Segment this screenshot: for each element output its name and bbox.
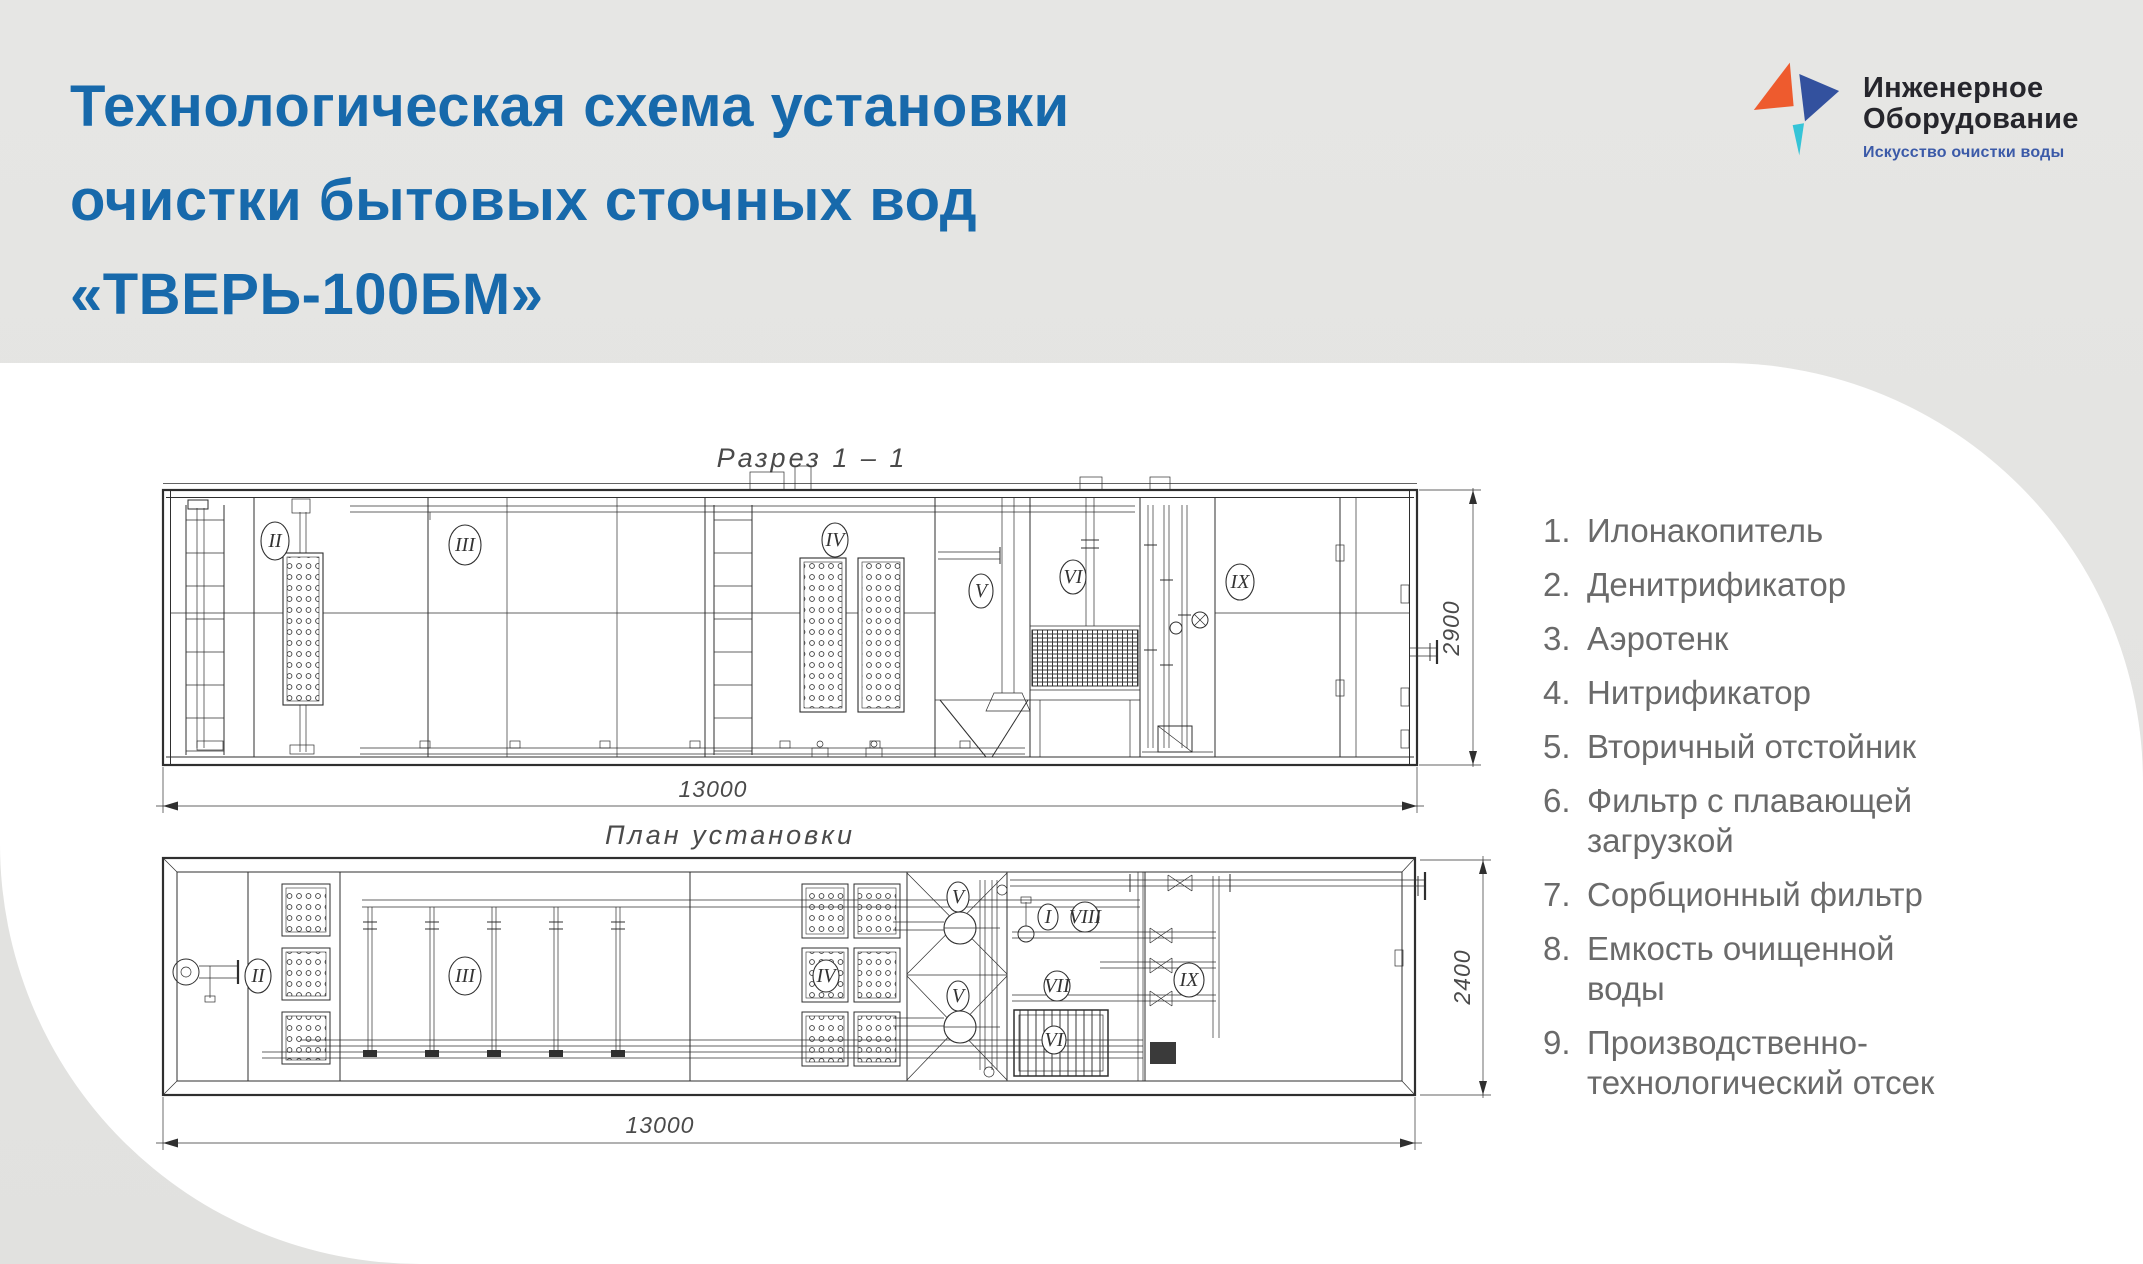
plan-drawing: План установки (156, 820, 1491, 1150)
plan-compartment-3: III (262, 900, 1143, 1058)
legend-item-text: Фильтр с плавающей загрузкой (1587, 781, 1967, 861)
list-item: 3. Аэротенк (1543, 619, 1973, 659)
plan-label-VIII: VIII (1069, 906, 1103, 928)
logo-name-line2: Оборудование (1863, 104, 2079, 135)
plan-caption: План установки (605, 820, 855, 850)
legend-item-number: 9. (1543, 1023, 1587, 1103)
logo-mark-icon (1748, 55, 1843, 163)
section-label-III: III (454, 534, 476, 556)
section-label-II: II (267, 530, 283, 552)
plan-label-IX: IX (1179, 969, 1200, 991)
section-label-IV: IV (825, 529, 848, 551)
list-item: 6. Фильтр с плавающей загрузкой (1543, 781, 1973, 861)
logo-text: Инженерное Оборудование Искусство очистк… (1863, 55, 2079, 162)
plan-label-IV: IV (816, 965, 839, 987)
section-compartment-5: V (935, 498, 1030, 757)
plan-label-I: I (1044, 906, 1053, 928)
section-ladder-left (186, 500, 224, 755)
plan-compartment-9: IX (1174, 950, 1403, 997)
logo-name-line1: Инженерное (1863, 73, 2079, 104)
section-label-IX: IX (1230, 571, 1251, 593)
legend-item-text: Илонакопитель (1587, 511, 1967, 551)
section-compartment-6: VI (1030, 498, 1140, 757)
legend-item-text: Производственно-технологический отсек (1587, 1023, 1967, 1103)
legend-item-number: 5. (1543, 727, 1587, 767)
title-line-3: «ТВЕРЬ-100БМ» (70, 248, 1070, 342)
legend-item-text: Нитрификатор (1587, 673, 1967, 713)
legend-item-number: 3. (1543, 619, 1587, 659)
logo: Инженерное Оборудование Искусство очистк… (1748, 55, 2079, 163)
list-item: 7. Сорбционный фильтр (1543, 875, 1973, 915)
section-compartment-2: II (261, 499, 323, 754)
plan-compartment-5: V V (893, 873, 1007, 1080)
logo-tagline: Искусство очистки воды (1863, 144, 2079, 162)
title-line-1: Технологическая схема установки (70, 60, 1070, 154)
section-compartment-3: III (360, 525, 1025, 754)
technical-drawing: Разрез 1 – 1 (140, 435, 1500, 1170)
plan-label-III: III (454, 965, 476, 987)
page-title: Технологическая схема установки очистки … (70, 60, 1070, 342)
logo-teal-triangle (1793, 123, 1804, 155)
list-item: 1. Илонакопитель (1543, 511, 1973, 551)
legend-item-number: 4. (1543, 673, 1587, 713)
section-height-dimension: 2900 (1438, 600, 1464, 656)
legend-item-number: 2. (1543, 565, 1587, 605)
plan-label-VI: VI (1045, 1029, 1065, 1051)
legend-item-number: 7. (1543, 875, 1587, 915)
list-item: 9. Производственно-технологический отсек (1543, 1023, 1973, 1103)
section-compartment-4: IV (714, 505, 904, 757)
list-item: 5. Вторичный отстойник (1543, 727, 1973, 767)
section-label-VI: VI (1064, 566, 1084, 588)
legend-item-number: 1. (1543, 511, 1587, 551)
plan-height-dimension: 2400 (1449, 949, 1475, 1005)
list-item: 8. Емкость очищенной воды (1543, 929, 1973, 1009)
legend-item-text: Денитрификатор (1587, 565, 1967, 605)
section-piping-zone (1142, 505, 1213, 752)
plan-aeration-modules-left (282, 884, 330, 1064)
plan-inlet-pump (173, 959, 238, 1002)
legend-item-text: Емкость очищенной воды (1587, 929, 1967, 1009)
section-drawing: Разрез 1 – 1 (156, 443, 1481, 813)
legend-item-text: Аэротенк (1587, 619, 1967, 659)
legend-item-text: Вторичный отстойник (1587, 727, 1967, 767)
plan-label-II: II (250, 965, 266, 987)
list-item: 2. Денитрификатор (1543, 565, 1973, 605)
section-compartment-9: IX (1226, 545, 1437, 748)
legend-list: 1. Илонакопитель 2. Денитрификатор 3. Аэ… (1543, 511, 1973, 1117)
plan-compartment-4: IV (802, 884, 900, 1066)
slide: Технологическая схема установки очистки … (0, 0, 2143, 1264)
title-line-2: очистки бытовых сточных вод (70, 154, 1070, 248)
legend-item-text: Сорбционный фильтр (1587, 875, 1967, 915)
section-width-dimension: 13000 (679, 776, 748, 802)
logo-navy-triangle (1799, 74, 1839, 121)
legend-item-number: 8. (1543, 929, 1587, 1009)
legend-item-number: 6. (1543, 781, 1587, 861)
logo-orange-triangle (1754, 63, 1794, 110)
plan-label-VII: VII (1044, 975, 1071, 997)
section-caption: Разрез 1 – 1 (717, 443, 908, 473)
list-item: 4. Нитрификатор (1543, 673, 1973, 713)
plan-equipment-cluster: I VIII VII VI (1010, 872, 1425, 1081)
plan-width-dimension: 13000 (626, 1112, 695, 1138)
